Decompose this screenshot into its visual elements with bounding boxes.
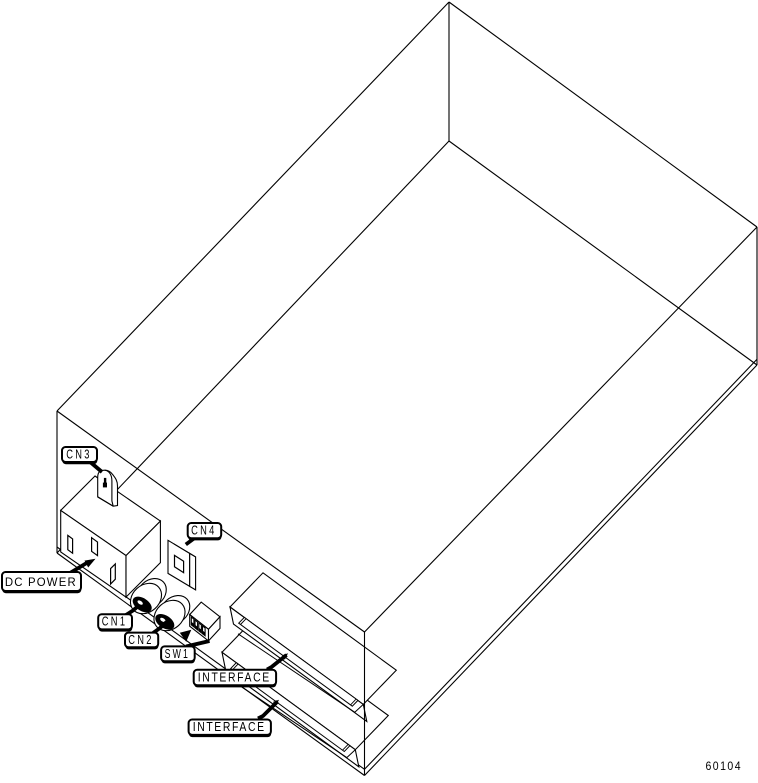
svg-text:INTERFACE: INTERFACE — [193, 719, 266, 734]
svg-text:60104: 60104 — [706, 761, 743, 773]
svg-text:SW1: SW1 — [165, 646, 191, 661]
svg-text:INTERFACE: INTERFACE — [198, 669, 271, 684]
svg-text:CN3: CN3 — [66, 447, 92, 462]
svg-text:DC POWER: DC POWER — [5, 577, 77, 589]
svg-text:CN1: CN1 — [102, 614, 128, 629]
svg-text:CN2: CN2 — [128, 632, 154, 647]
svg-text:CN4: CN4 — [191, 523, 217, 538]
